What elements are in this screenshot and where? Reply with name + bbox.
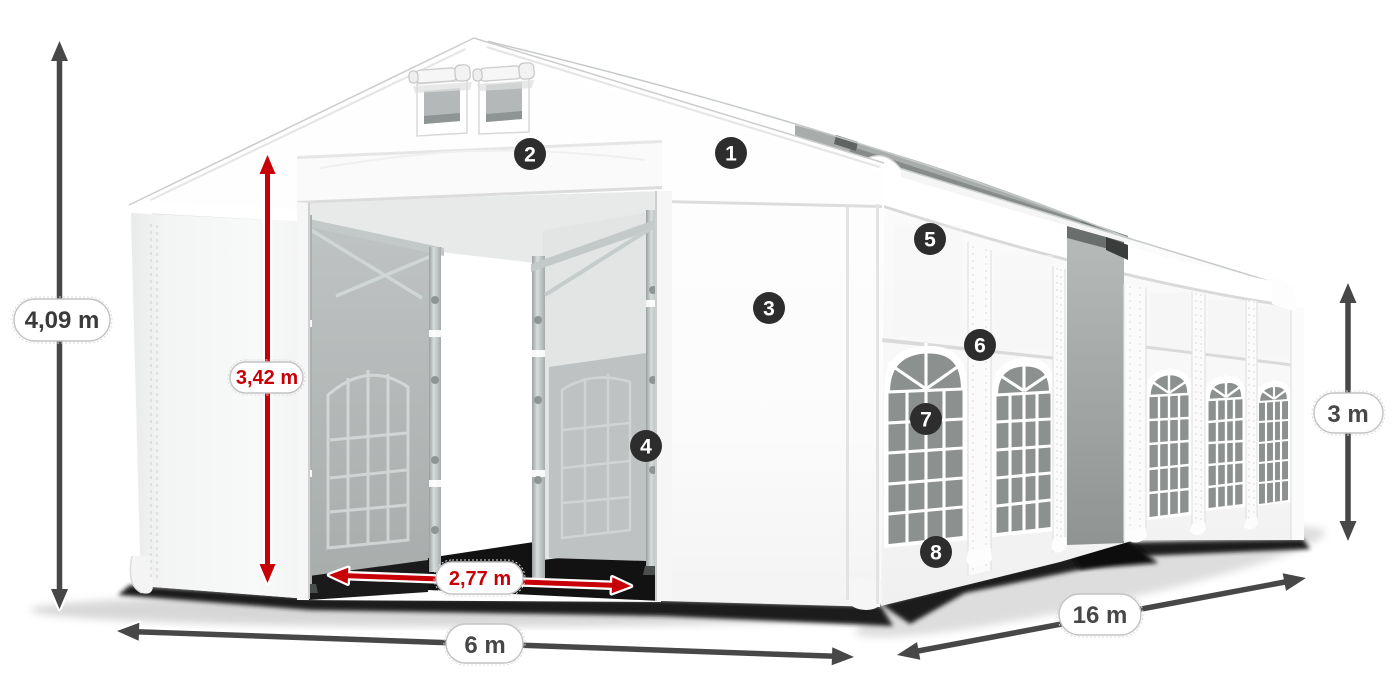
svg-text:3,42 m: 3,42 m [236,367,298,389]
svg-text:7: 7 [920,409,932,432]
svg-text:4,09 m: 4,09 m [25,307,100,334]
svg-text:8: 8 [930,542,942,565]
svg-text:6: 6 [974,335,986,358]
svg-text:2: 2 [524,144,536,167]
svg-text:1: 1 [725,143,737,166]
svg-text:6 m: 6 m [464,632,505,659]
svg-text:2,77 m: 2,77 m [449,568,511,590]
svg-text:5: 5 [924,229,936,252]
svg-text:3 m: 3 m [1327,401,1368,428]
svg-text:4: 4 [640,436,652,459]
svg-text:16 m: 16 m [1073,602,1128,629]
svg-text:3: 3 [763,298,775,321]
